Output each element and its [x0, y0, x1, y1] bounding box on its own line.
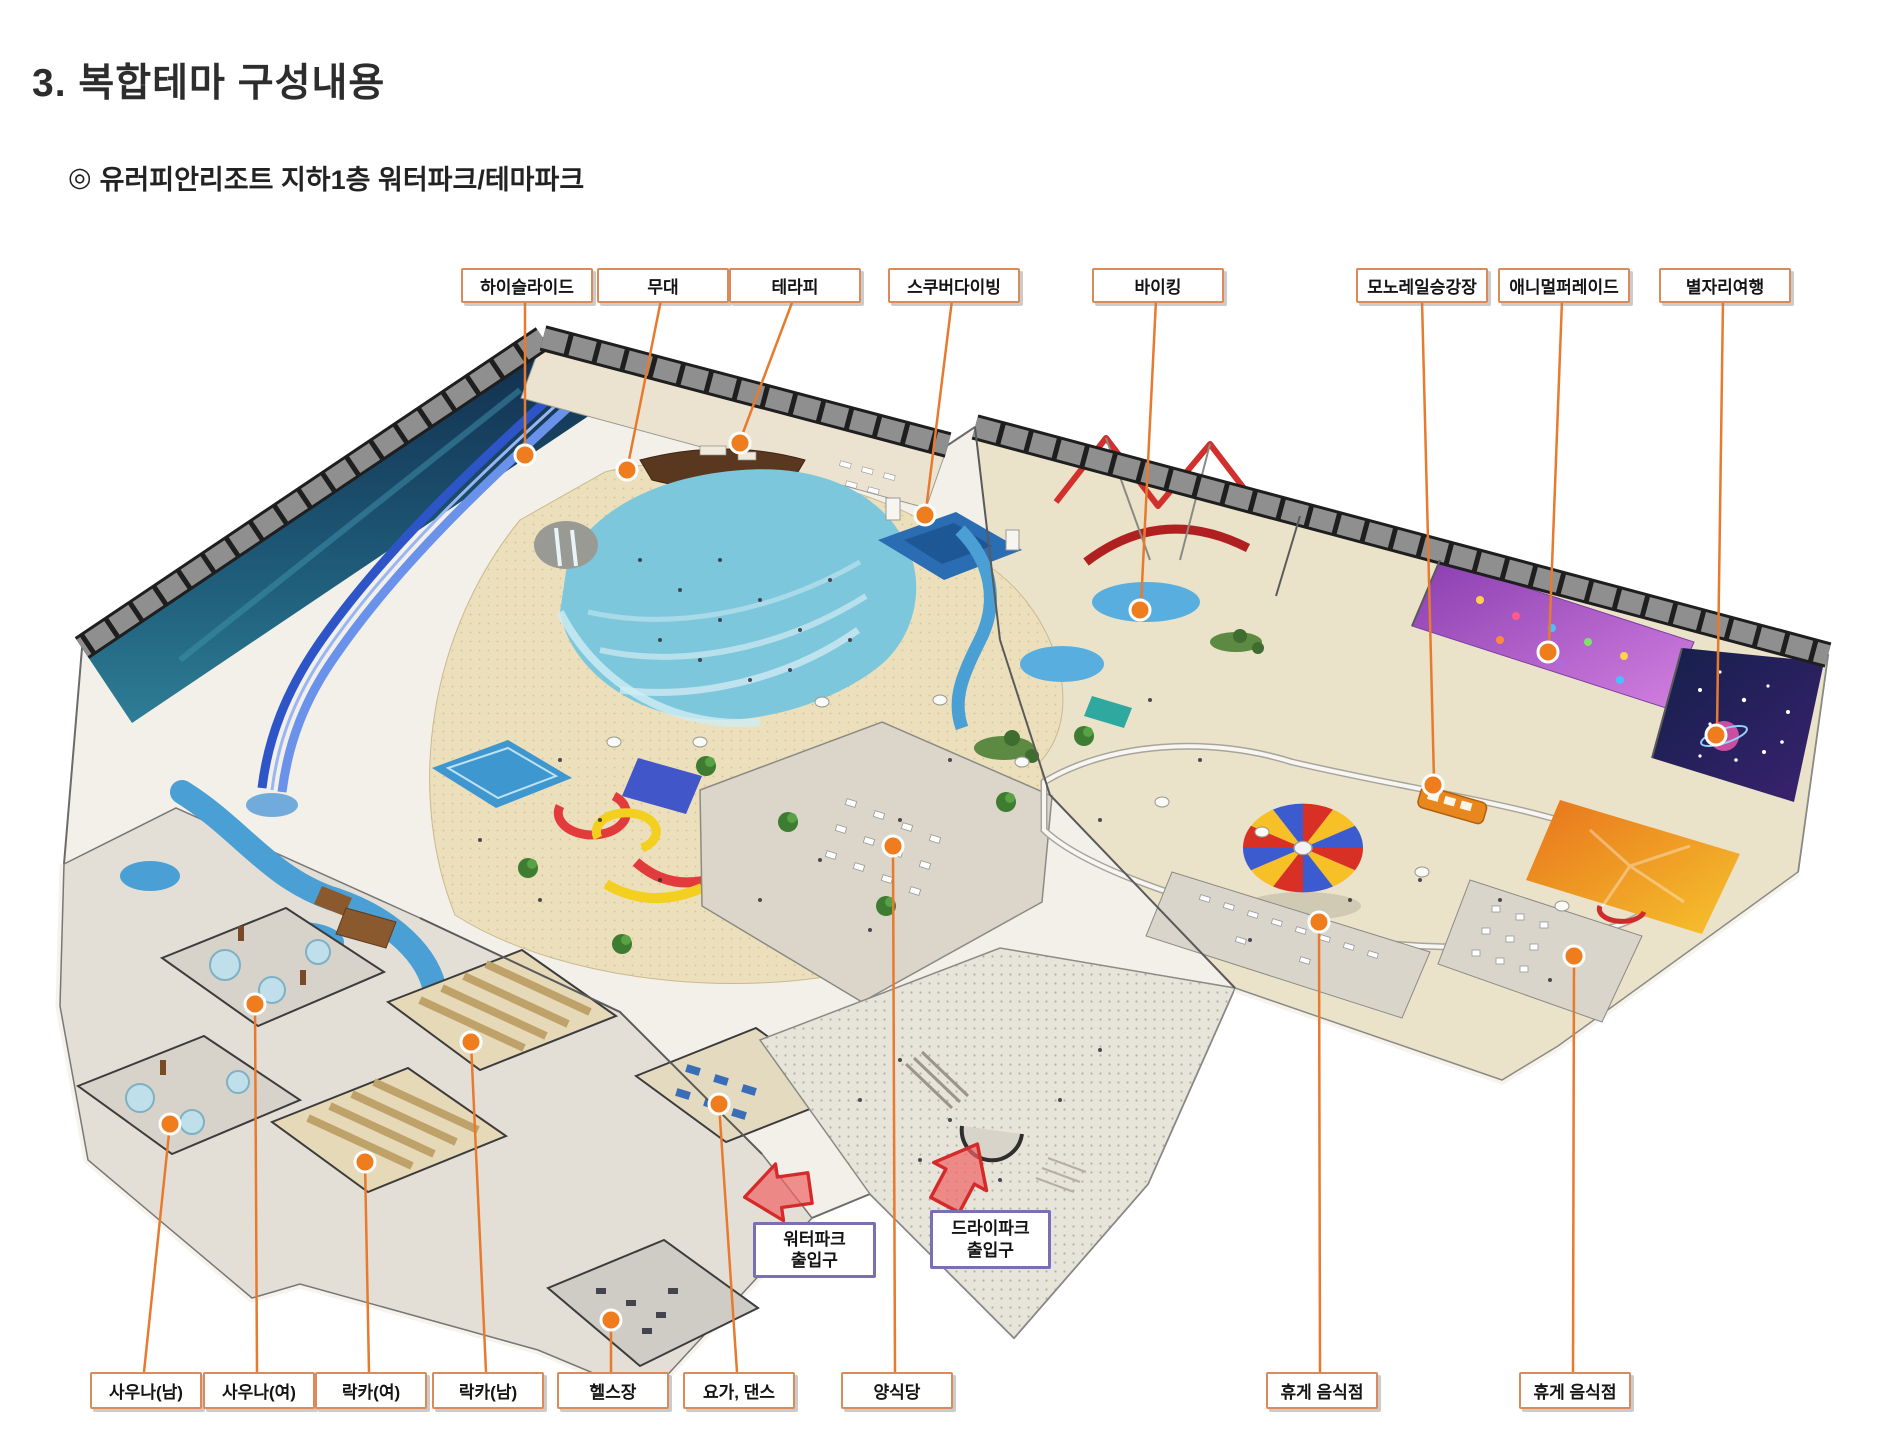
callout-therapy: 테라피	[729, 268, 861, 303]
callout-foodcourt-1: 휴게 음식점	[1266, 1372, 1378, 1409]
marker-locker-women-icon	[355, 1152, 375, 1172]
callout-scuba: 스쿠버다이빙	[888, 268, 1020, 303]
callout-monorail: 모노레일승강장	[1356, 268, 1488, 303]
floorplan-map: VIKING	[0, 0, 1900, 1447]
marker-constellation-icon	[1706, 725, 1726, 745]
marker-therapy-icon	[730, 433, 750, 453]
marker-sauna-men-icon	[160, 1114, 180, 1134]
document-page: 3. 복합테마 구성내용 ◎ 유러피안리조트 지하1층 워터파크/테마파크	[0, 0, 1900, 1447]
callout-sauna-men: 사우나(남)	[90, 1372, 202, 1409]
waterfall-rocks	[534, 521, 598, 569]
callout-restaurant: 양식당	[841, 1372, 953, 1409]
callout-stage: 무대	[597, 268, 729, 303]
marker-locker-men-icon	[461, 1032, 481, 1052]
marker-foodcourt2-icon	[1564, 946, 1584, 966]
callout-animal-parade: 애니멀퍼레이드	[1498, 268, 1630, 303]
marker-scuba-icon	[915, 505, 935, 525]
marker-viking-icon	[1130, 600, 1150, 620]
marker-highslide-icon	[515, 445, 535, 465]
marker-sauna-women-icon	[245, 994, 265, 1014]
marker-animal-icon	[1538, 642, 1558, 662]
callout-yoga-dance: 요가, 댄스	[683, 1372, 795, 1409]
marker-yoga-icon	[709, 1094, 729, 1114]
callout-locker-men: 락카(남)	[432, 1372, 544, 1409]
callout-constellation: 별자리여행	[1659, 268, 1791, 303]
callout-gym: 헬스장	[557, 1372, 669, 1409]
callout-sauna-women: 사우나(여)	[203, 1372, 315, 1409]
callout-locker-women: 락카(여)	[315, 1372, 427, 1409]
callout-drypark-entrance: 드라이파크 출입구	[930, 1210, 1051, 1269]
marker-gym-icon	[601, 1310, 621, 1330]
callout-viking: 바이킹	[1092, 268, 1224, 303]
marker-foodcourt1-icon	[1309, 912, 1329, 932]
callout-waterpark-entrance: 워터파크 출입구	[753, 1222, 876, 1278]
callout-foodcourt-2: 휴게 음식점	[1519, 1372, 1631, 1409]
marker-restaurant-icon	[883, 836, 903, 856]
marker-monorail-icon	[1423, 775, 1443, 795]
callout-highslide: 하이슬라이드	[461, 268, 593, 303]
marker-stage-icon	[617, 460, 637, 480]
